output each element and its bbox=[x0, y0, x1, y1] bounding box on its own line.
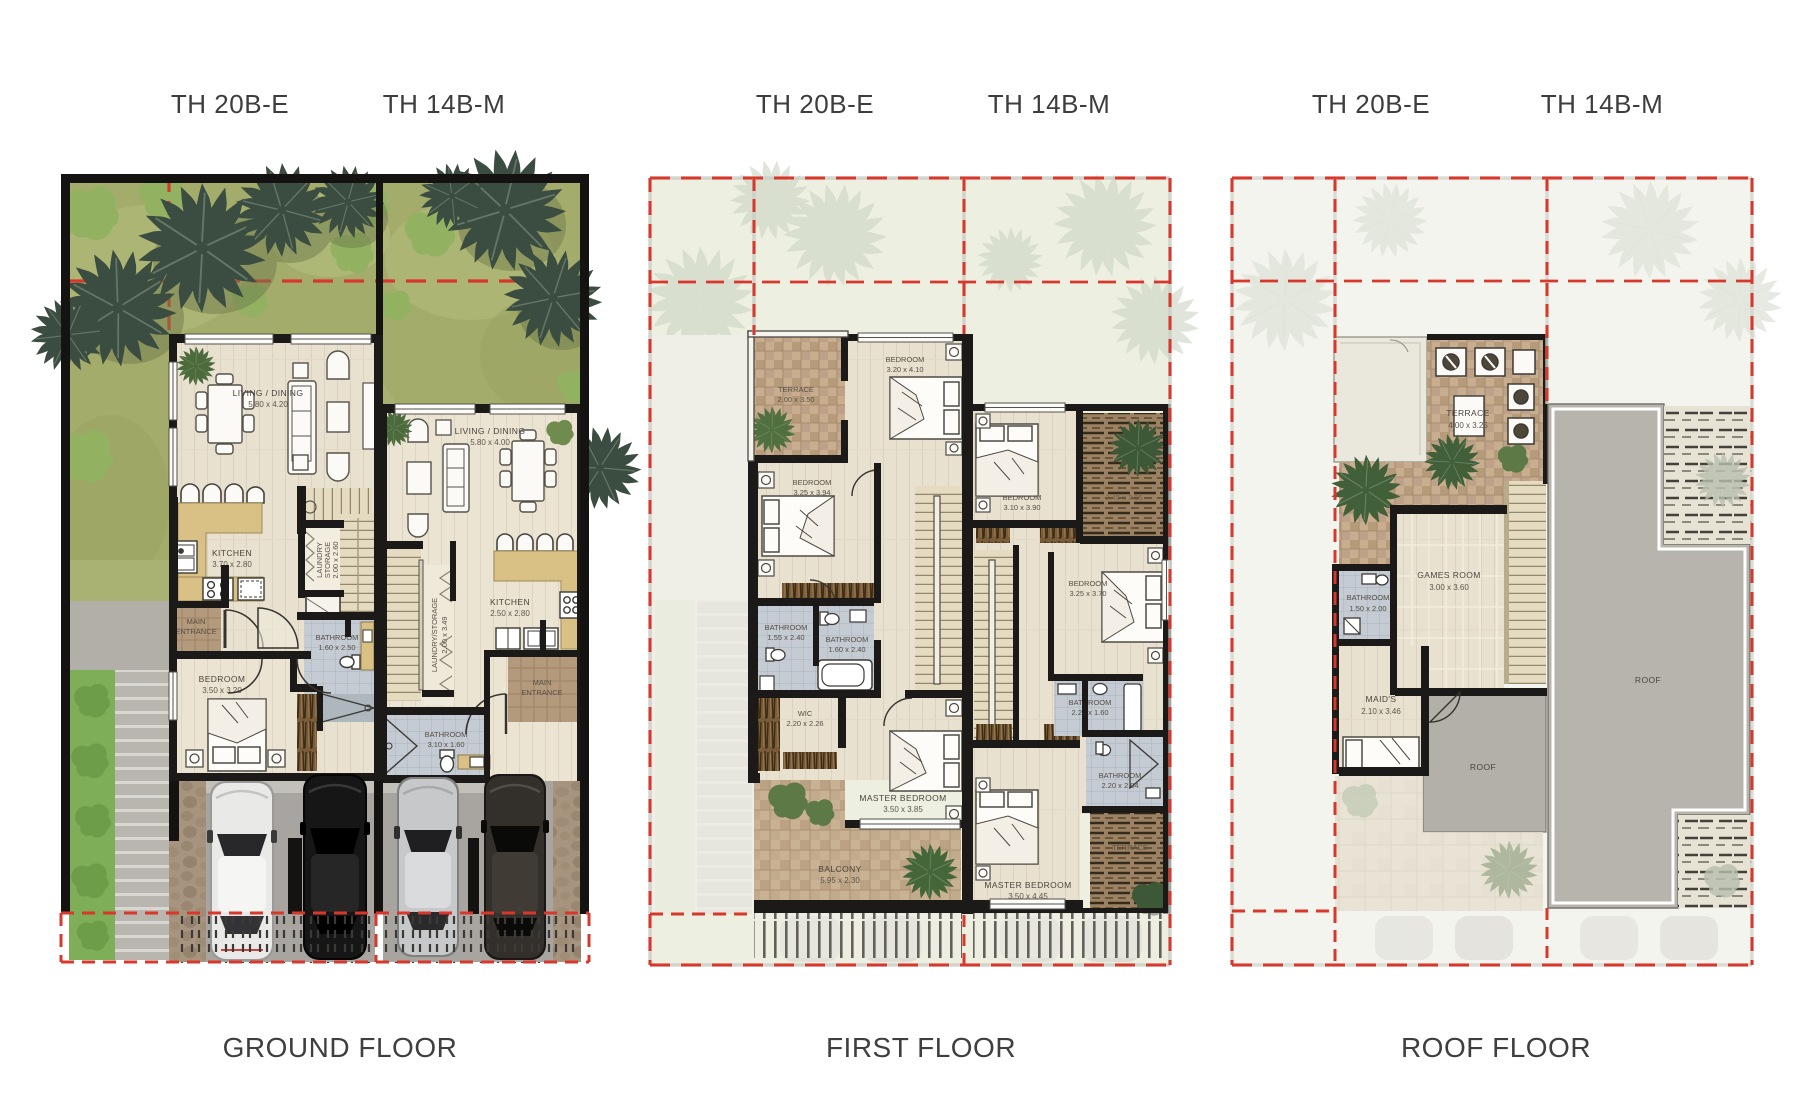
svg-text:TH 14B-M: TH 14B-M bbox=[1541, 89, 1663, 119]
svg-text:BATHROOM: BATHROOM bbox=[826, 635, 869, 644]
svg-text:2.50 x 2.80: 2.50 x 2.80 bbox=[490, 609, 530, 618]
svg-text:GROUND FLOOR: GROUND FLOOR bbox=[223, 1032, 458, 1063]
svg-text:2.10 x 3.46: 2.10 x 3.46 bbox=[1361, 707, 1401, 716]
svg-text:FIRST FLOOR: FIRST FLOOR bbox=[826, 1032, 1016, 1063]
svg-text:LIVING / DINING: LIVING / DINING bbox=[233, 388, 304, 398]
svg-text:3.50 x 3.85: 3.50 x 3.85 bbox=[883, 805, 923, 814]
svg-text:3.10 x 1.60: 3.10 x 1.60 bbox=[427, 740, 464, 749]
svg-text:TH 20B-E: TH 20B-E bbox=[756, 89, 874, 119]
svg-text:BATHROOM: BATHROOM bbox=[1347, 593, 1390, 602]
svg-text:2.00 x 3.50: 2.00 x 3.50 bbox=[777, 395, 814, 404]
svg-text:5.80 x 4.00: 5.80 x 4.00 bbox=[470, 438, 510, 447]
svg-text:MAIN: MAIN bbox=[533, 678, 552, 687]
svg-text:ENTRANCE: ENTRANCE bbox=[175, 627, 216, 636]
svg-text:4.00 x 3.25: 4.00 x 3.25 bbox=[1448, 421, 1488, 430]
svg-text:BATHROOM: BATHROOM bbox=[1069, 698, 1112, 707]
svg-text:KITCHEN: KITCHEN bbox=[490, 597, 530, 607]
svg-text:TERRACE: TERRACE bbox=[778, 385, 814, 394]
svg-text:1.60 x 2.40: 1.60 x 2.40 bbox=[828, 645, 865, 654]
svg-text:1.50 x 2.00: 1.50 x 2.00 bbox=[1349, 604, 1386, 613]
svg-text:BEDROOM: BEDROOM bbox=[1069, 579, 1108, 588]
svg-text:TH 14B-M: TH 14B-M bbox=[988, 89, 1110, 119]
svg-text:3.20 x 4.10: 3.20 x 4.10 bbox=[886, 365, 923, 374]
svg-text:BATHROOM: BATHROOM bbox=[316, 633, 359, 642]
svg-text:TERRACE: TERRACE bbox=[1446, 408, 1489, 418]
svg-text:KITCHEN: KITCHEN bbox=[212, 548, 252, 558]
svg-text:TH 14B-M: TH 14B-M bbox=[383, 89, 505, 119]
svg-text:1.60 x 2.50: 1.60 x 2.50 bbox=[318, 643, 355, 652]
svg-text:MAIN: MAIN bbox=[187, 617, 206, 626]
svg-text:ROOF FLOOR: ROOF FLOOR bbox=[1401, 1032, 1591, 1063]
svg-text:WIC: WIC bbox=[798, 709, 813, 718]
svg-text:ROOF: ROOF bbox=[1635, 675, 1661, 685]
svg-text:ENTRANCE: ENTRANCE bbox=[521, 688, 562, 697]
svg-text:LIVING / DINING: LIVING / DINING bbox=[455, 426, 526, 436]
svg-text:TH 20B-E: TH 20B-E bbox=[171, 89, 289, 119]
svg-text:BATHROOM: BATHROOM bbox=[425, 730, 468, 739]
svg-text:3.70 x 2.80: 3.70 x 2.80 bbox=[212, 560, 252, 569]
svg-text:TH 20B-E: TH 20B-E bbox=[1312, 89, 1430, 119]
svg-text:5.95 x 2.30: 5.95 x 2.30 bbox=[820, 876, 860, 885]
svg-text:BEDROOM: BEDROOM bbox=[886, 355, 925, 364]
svg-text:LAUNDRY/STORAGE: LAUNDRY/STORAGE bbox=[430, 598, 439, 672]
svg-text:TERRACE: TERRACE bbox=[1112, 843, 1148, 852]
svg-text:GAMES ROOM: GAMES ROOM bbox=[1417, 570, 1481, 580]
svg-text:MAID'S: MAID'S bbox=[1366, 694, 1397, 704]
svg-text:BATHROOM: BATHROOM bbox=[1099, 771, 1142, 780]
svg-text:3.50 x 3.20: 3.50 x 3.20 bbox=[202, 686, 242, 695]
svg-text:2.25 x 1.60: 2.25 x 1.60 bbox=[1071, 708, 1108, 717]
svg-text:2.00 x 3.49: 2.00 x 3.49 bbox=[440, 616, 449, 653]
svg-text:3.10 x 3.90: 3.10 x 3.90 bbox=[1003, 503, 1040, 512]
svg-text:3.00 x 3.60: 3.00 x 3.60 bbox=[1429, 583, 1469, 592]
svg-text:1.55 x 2.40: 1.55 x 2.40 bbox=[767, 633, 804, 642]
svg-text:MASTER BEDROOM: MASTER BEDROOM bbox=[984, 880, 1071, 890]
svg-text:BEDROOM: BEDROOM bbox=[793, 478, 832, 487]
svg-text:3.25 x 3.70: 3.25 x 3.70 bbox=[1069, 589, 1106, 598]
svg-text:2.00 x 2.60: 2.00 x 2.60 bbox=[331, 541, 340, 578]
svg-text:ROOF: ROOF bbox=[1470, 762, 1496, 772]
svg-text:MASTER BEDROOM: MASTER BEDROOM bbox=[859, 793, 946, 803]
svg-text:2.45 x 3.95: 2.45 x 3.95 bbox=[1105, 493, 1142, 502]
svg-text:2.20 x 2.26: 2.20 x 2.26 bbox=[786, 719, 823, 728]
svg-text:5.80 x 4.20: 5.80 x 4.20 bbox=[248, 400, 288, 409]
svg-text:BALCONY: BALCONY bbox=[818, 864, 861, 874]
svg-text:BATHROOM: BATHROOM bbox=[765, 623, 808, 632]
svg-text:BEDROOM: BEDROOM bbox=[199, 674, 246, 684]
